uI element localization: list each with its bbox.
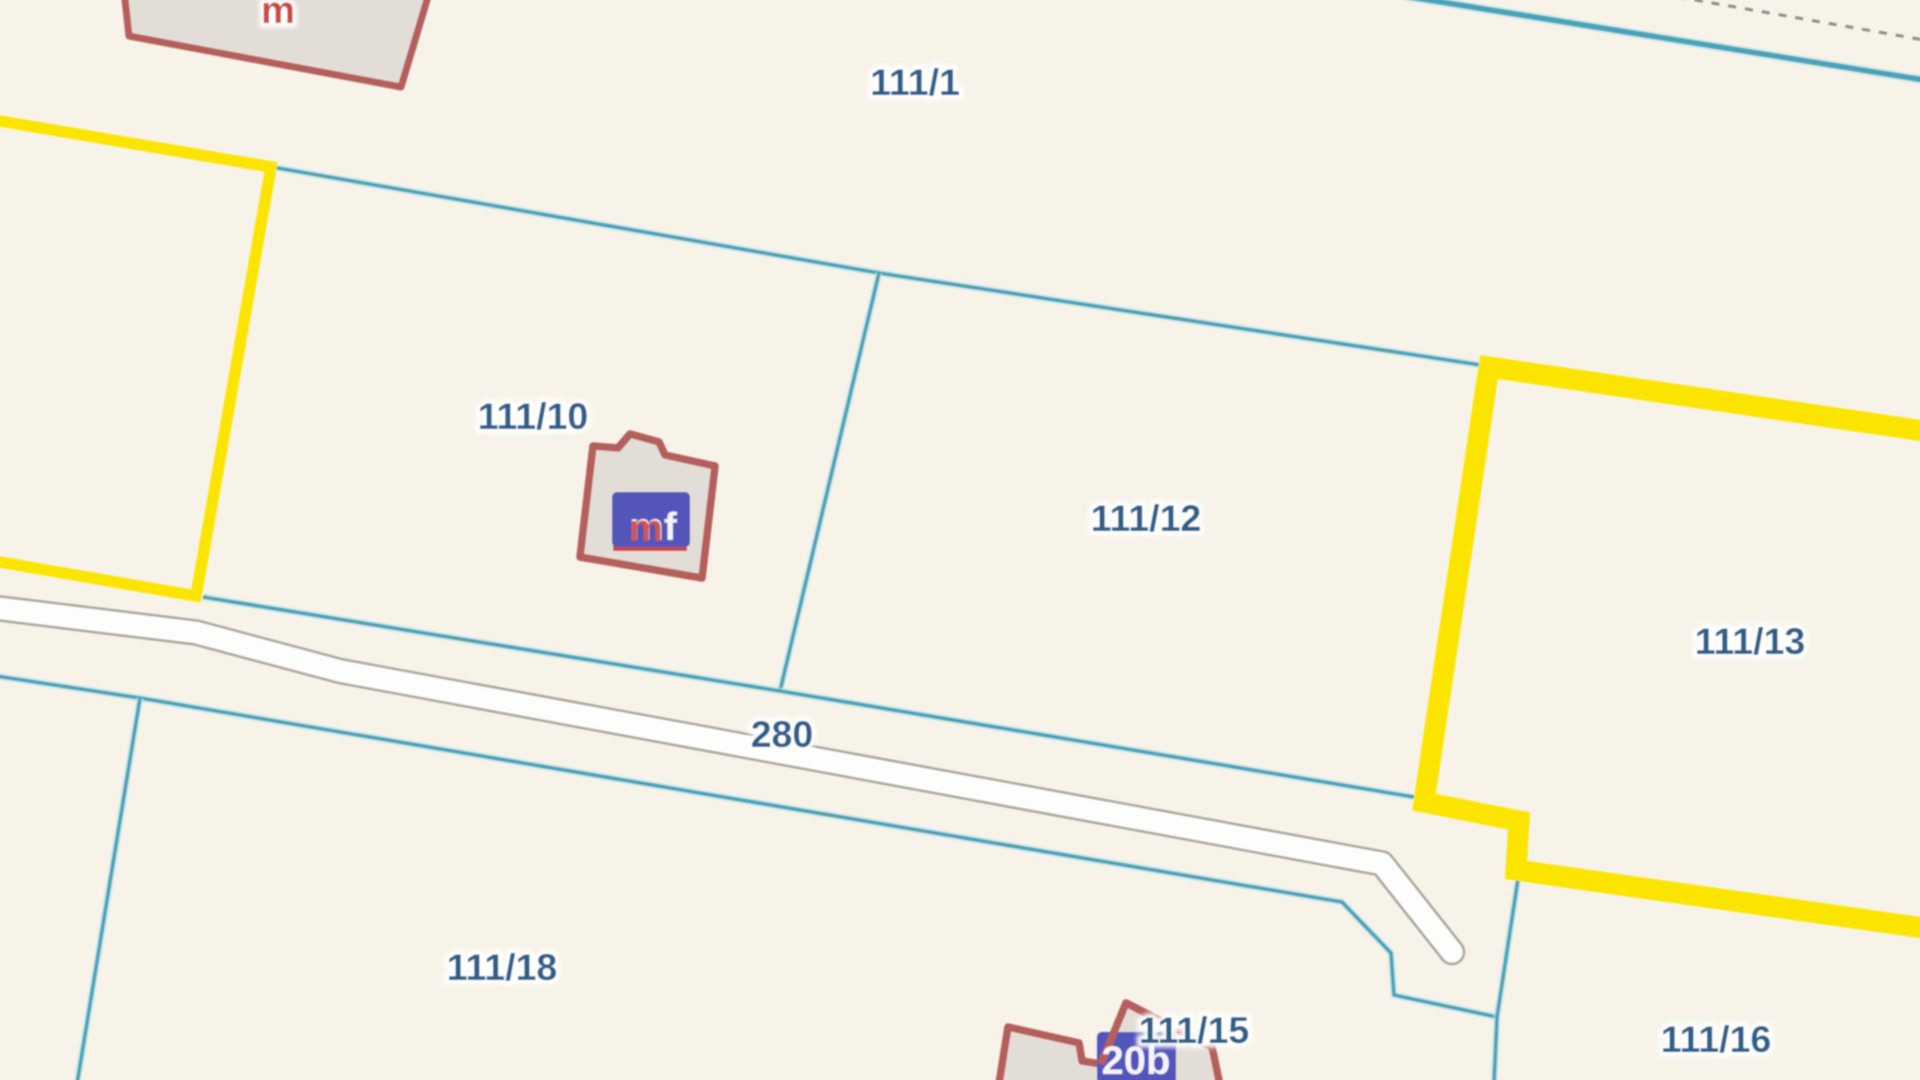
svg-text:111/13: 111/13 [1695, 620, 1806, 662]
svg-text:111/15: 111/15 [1139, 1009, 1250, 1051]
svg-text:m: m [261, 0, 295, 32]
svg-text:111/18: 111/18 [447, 946, 558, 988]
svg-text:111/12: 111/12 [1091, 497, 1202, 539]
svg-text:m: m [629, 508, 663, 550]
svg-text:111/10: 111/10 [478, 395, 589, 437]
svg-text:111/1: 111/1 [870, 61, 960, 103]
svg-text:280: 280 [751, 713, 814, 755]
svg-text:111/16: 111/16 [1661, 1018, 1772, 1060]
